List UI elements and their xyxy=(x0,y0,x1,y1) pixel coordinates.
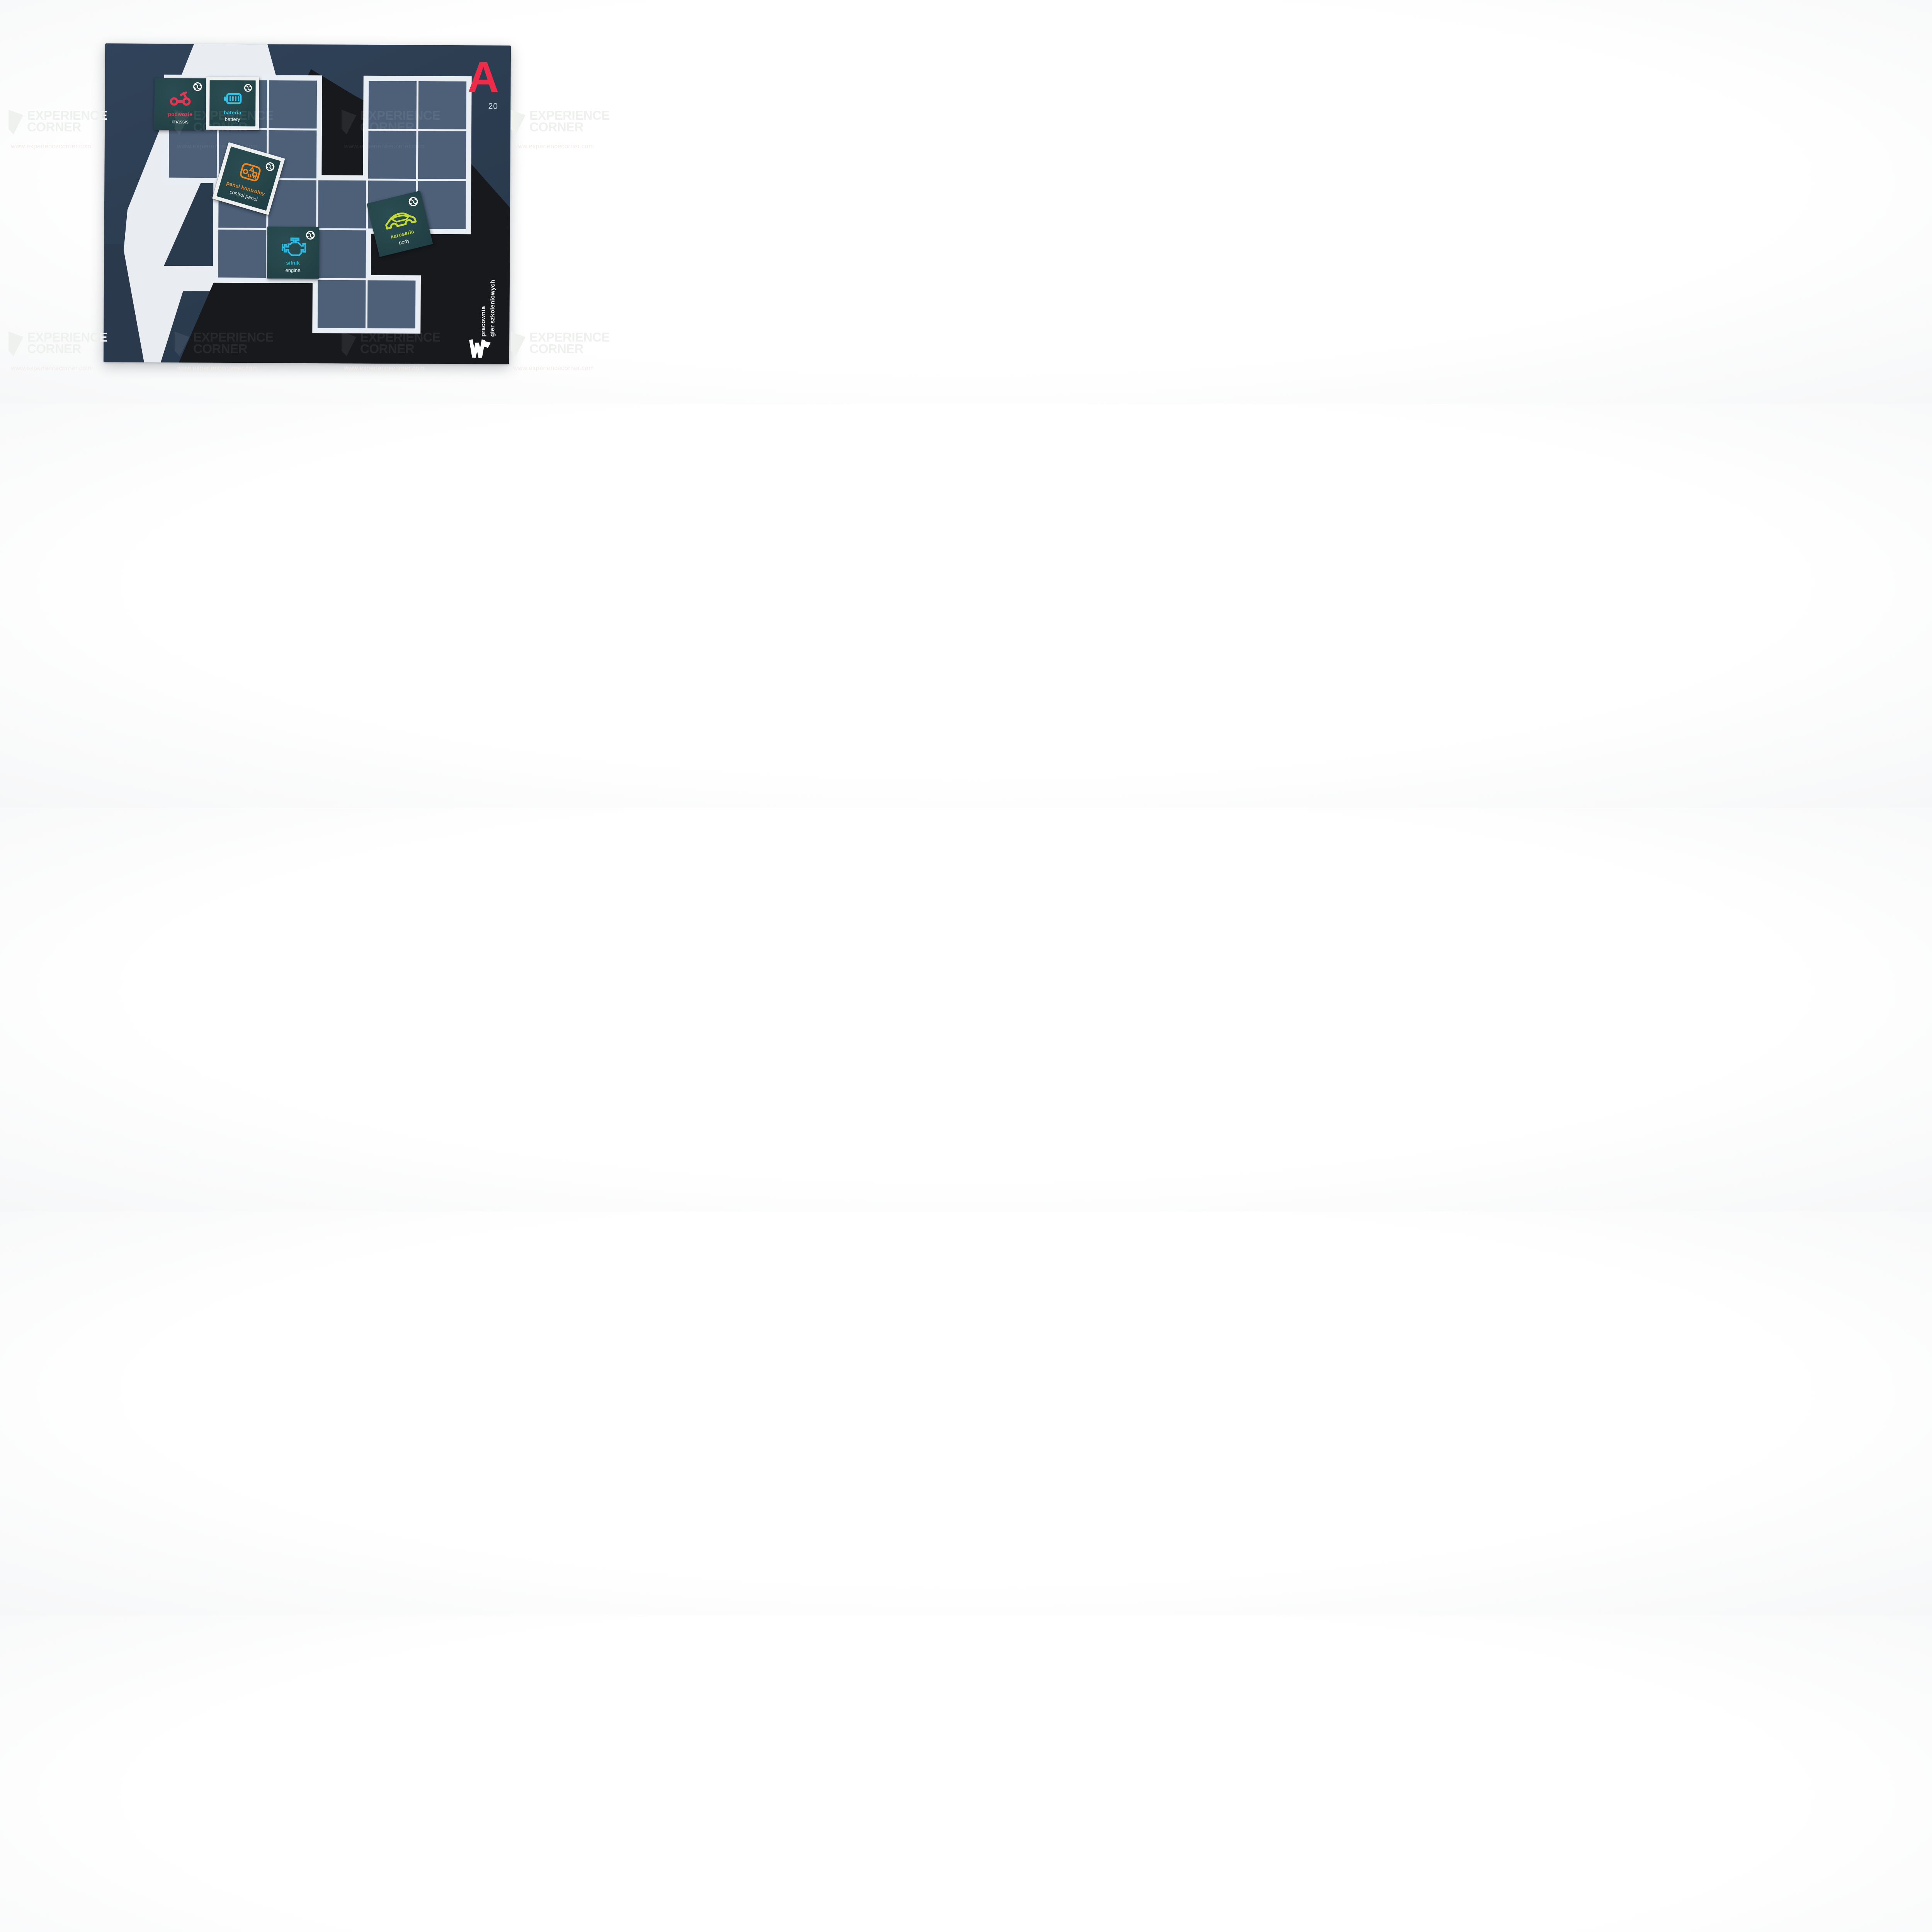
watermark: EXPERIENCECORNER www.experiencecorner.co… xyxy=(9,110,101,150)
cell-count-label: 20 xyxy=(481,102,505,111)
tile-label-en: chassis xyxy=(154,118,206,124)
tile-label-pl: podwozie xyxy=(154,111,206,117)
watermark-url: www.experiencecorner.com xyxy=(344,365,434,372)
engine-icon xyxy=(272,235,314,259)
board-variant-label: A xyxy=(461,55,505,102)
watermark: EXPERIENCECORNER www.experiencecorner.co… xyxy=(511,110,604,150)
grid-cell-r3c4[interactable] xyxy=(318,180,366,229)
grid-cell-r5c5[interactable] xyxy=(367,280,416,328)
battery-icon xyxy=(214,88,251,109)
publisher-line2: gier szkoleniowych xyxy=(489,280,496,337)
grid-cell-r1c6[interactable] xyxy=(418,81,467,129)
watermark-url: www.experiencecorner.com xyxy=(513,365,604,372)
watermark-url: www.experiencecorner.com xyxy=(11,143,101,150)
publisher-logo: pracownia gier szkoleniowych xyxy=(467,257,500,363)
tile-engine[interactable]: silnik engine xyxy=(267,226,319,279)
watermark-url: www.experiencecorner.com xyxy=(11,365,101,372)
tile-battery[interactable]: bateria battery xyxy=(206,77,259,130)
tile-chassis[interactable]: podwozie chassis xyxy=(154,78,206,130)
grid-cell-r5c4[interactable] xyxy=(318,280,366,328)
game-board: podwozie chassis bateria battery panel k… xyxy=(104,43,511,364)
tile-face: panel kontrolny control panel xyxy=(216,146,281,211)
grid-cell-r4c4[interactable] xyxy=(318,230,366,279)
watermark-triangle-icon xyxy=(9,332,23,356)
watermark-brand: EXPERIENCECORNER xyxy=(27,332,107,355)
grid-cell-r2c6[interactable] xyxy=(418,131,466,179)
grid-cell-r1c5[interactable] xyxy=(369,81,417,129)
watermark-triangle-icon xyxy=(511,332,526,356)
watermark-triangle-icon xyxy=(9,110,23,134)
tile-face: podwozie chassis xyxy=(154,78,206,130)
tile-label-pl: bateria xyxy=(209,110,255,116)
publisher-line1: pracownia xyxy=(480,306,486,337)
tile-face: bateria battery xyxy=(209,80,256,127)
watermark-triangle-icon xyxy=(511,110,526,134)
watermark-brand: EXPERIENCECORNER xyxy=(529,110,610,133)
tile-label-pl: silnik xyxy=(267,260,319,266)
watermark-url: www.experiencecorner.com xyxy=(513,143,604,150)
grid-cell-r4c2[interactable] xyxy=(218,230,266,278)
tile-label-en: engine xyxy=(267,267,319,273)
chassis-icon xyxy=(160,86,201,110)
watermark-brand: EXPERIENCECORNER xyxy=(529,332,610,355)
tile-face: silnik engine xyxy=(267,226,319,279)
grid-cell-r2c5[interactable] xyxy=(368,131,417,179)
photo-page: { "page": {"background": "#ffffff"}, "wa… xyxy=(0,0,606,404)
watermark: EXPERIENCECORNER www.experiencecorner.co… xyxy=(9,332,101,372)
watermark: EXPERIENCECORNER www.experiencecorner.co… xyxy=(511,332,604,372)
tile-label-en: battery xyxy=(209,116,255,122)
publisher-w-icon xyxy=(468,339,492,361)
grid-cell-r1c3[interactable] xyxy=(269,80,317,129)
grid-cell-r2c1[interactable] xyxy=(169,130,217,178)
watermark-url: www.experiencecorner.com xyxy=(177,365,267,372)
watermark-brand: EXPERIENCECORNER xyxy=(27,110,107,133)
